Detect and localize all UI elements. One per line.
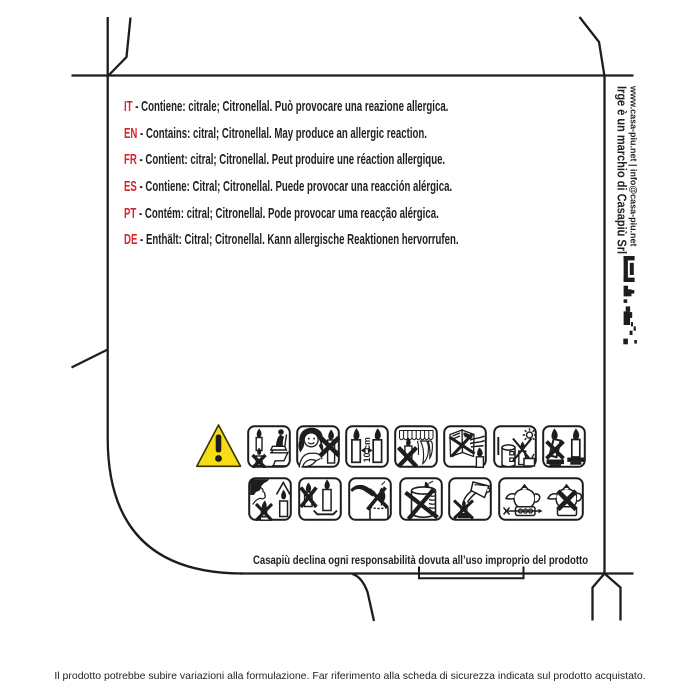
svg-text:cm: cm xyxy=(362,436,372,449)
svg-text:10: 10 xyxy=(362,452,372,462)
